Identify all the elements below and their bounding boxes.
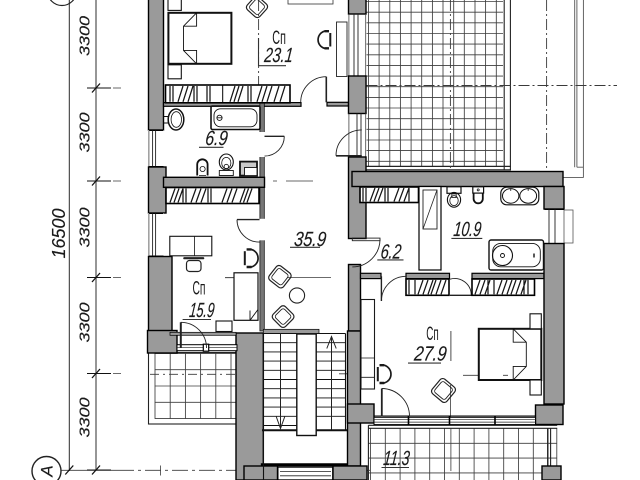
svg-text:3300: 3300 xyxy=(76,397,93,438)
svg-text:16500: 16500 xyxy=(48,208,69,259)
svg-text:10.9: 10.9 xyxy=(452,218,482,241)
svg-text:11.3: 11.3 xyxy=(382,447,411,470)
svg-text:3300: 3300 xyxy=(76,207,93,248)
svg-text:27.9: 27.9 xyxy=(412,343,447,366)
svg-text:3300: 3300 xyxy=(76,302,93,343)
svg-text:6.9: 6.9 xyxy=(204,127,229,150)
svg-text:3300: 3300 xyxy=(76,15,93,56)
svg-text:A: A xyxy=(38,465,57,477)
svg-text:Сп: Сп xyxy=(193,279,206,300)
svg-text:15.9: 15.9 xyxy=(188,299,215,322)
svg-text:23.1: 23.1 xyxy=(263,44,295,67)
svg-text:3300: 3300 xyxy=(76,112,93,153)
